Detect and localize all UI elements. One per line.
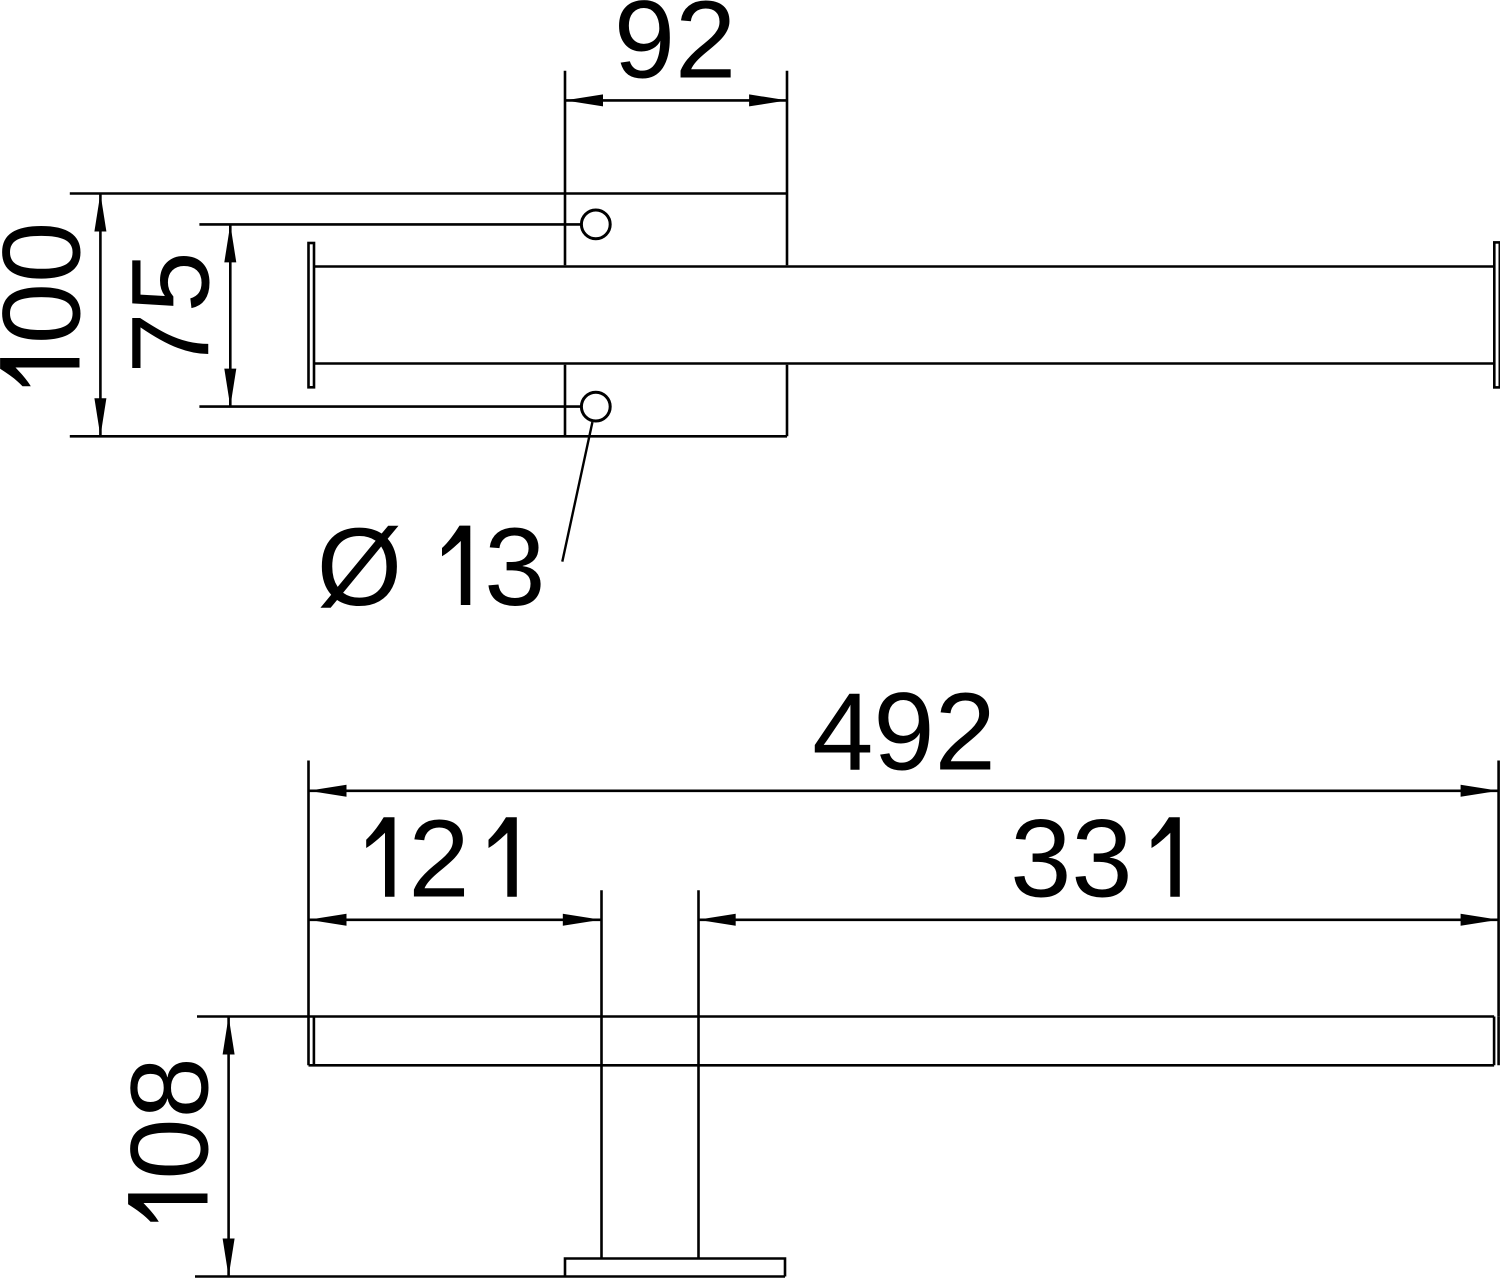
svg-text:08: 08: [109, 1057, 232, 1179]
svg-text:Ø: Ø: [317, 506, 403, 629]
svg-text:2: 2: [408, 798, 469, 921]
svg-text:33: 33: [1010, 798, 1132, 921]
svg-text:75: 75: [110, 251, 233, 373]
svg-text:492: 492: [812, 670, 996, 793]
svg-text:3: 3: [484, 506, 545, 629]
svg-text:00: 00: [0, 222, 104, 344]
svg-text:92: 92: [614, 0, 736, 102]
